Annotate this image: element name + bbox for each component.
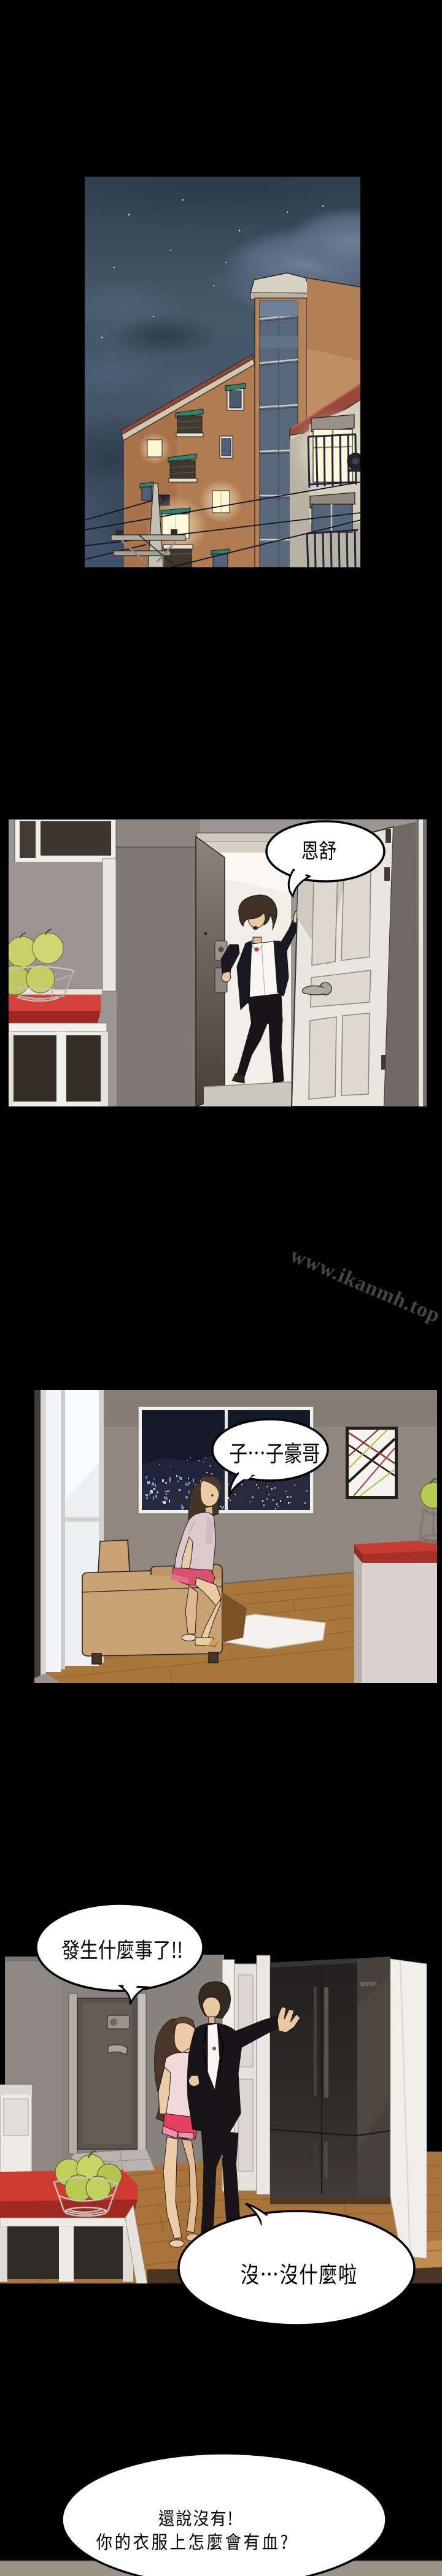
svg-text:seren: seren	[360, 1980, 377, 1988]
